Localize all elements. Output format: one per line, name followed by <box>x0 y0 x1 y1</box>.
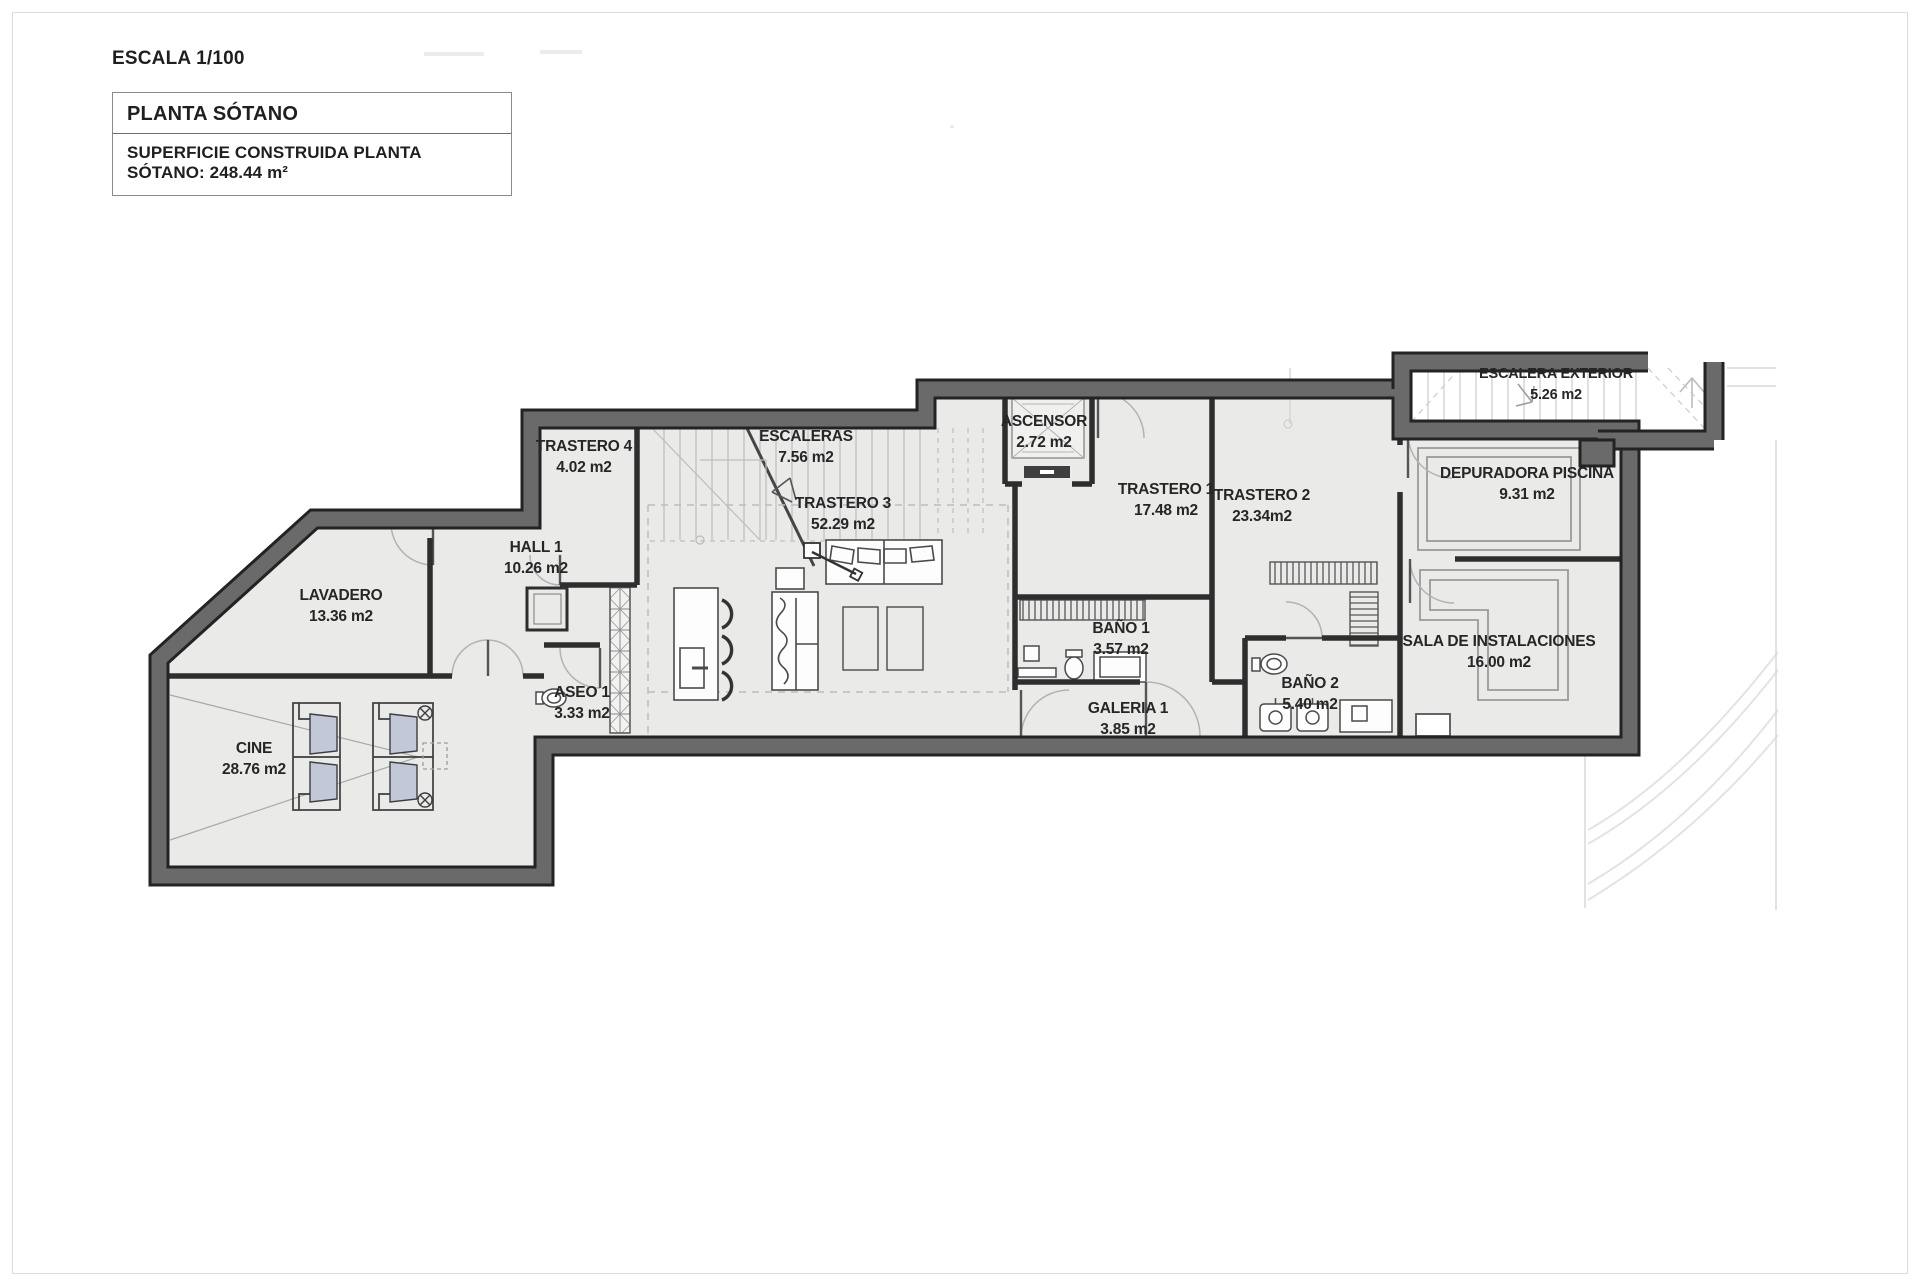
room-label-trastero1: TRASTERO 1 <box>1118 481 1215 498</box>
room-label-depuradora-piscina: DEPURADORA PISCINA <box>1440 465 1614 482</box>
room-label-escalera-exterior: ESCALERA EXTERIOR <box>1479 366 1634 382</box>
room-label-sala-instalaciones: SALA DE INSTALACIONES <box>1402 633 1595 650</box>
room-area-hall1: 10.26 m2 <box>504 560 568 577</box>
built-area-note: SUPERFICIE CONSTRUIDA PLANTA SÓTANO: 248… <box>113 134 511 195</box>
room-area-depuradora-piscina: 9.31 m2 <box>1499 486 1554 503</box>
wardrobe-bano1 <box>1020 600 1145 620</box>
room-area-trastero1: 17.48 m2 <box>1134 502 1198 519</box>
room-label-bano1: BAÑO 1 <box>1092 619 1150 637</box>
room-area-bano1: 3.57 m2 <box>1093 641 1148 658</box>
floor-plan-page: TRASTERO 44.02 m2ESCALERAS7.56 m2ASCENSO… <box>0 0 1920 1280</box>
room-label-aseo1: ASEO 1 <box>554 684 610 701</box>
room-label-cine: CINE <box>236 740 272 757</box>
room-area-cine: 28.76 m2 <box>222 761 286 778</box>
room-area-trastero3: 52.29 m2 <box>811 516 875 533</box>
aseo-closet <box>527 588 567 630</box>
room-label-escaleras: ESCALERAS <box>759 428 853 445</box>
room-area-escaleras: 7.56 m2 <box>778 449 833 466</box>
shaft-hatch-strip <box>610 584 630 733</box>
room-label-galeria1: GALERIA 1 <box>1088 700 1169 717</box>
title-box: PLANTA SÓTANO SUPERFICIE CONSTRUIDA PLAN… <box>112 92 512 196</box>
room-label-lavadero: LAVADERO <box>299 587 382 604</box>
room-label-ascensor: ASCENSOR <box>1001 413 1087 430</box>
floor-title: PLANTA SÓTANO <box>113 93 511 134</box>
room-area-trastero2: 23.34m2 <box>1232 508 1292 525</box>
room-label-hall1: HALL 1 <box>510 539 563 556</box>
side-table <box>776 568 804 589</box>
room-area-ascensor: 2.72 m2 <box>1016 434 1071 451</box>
room-area-aseo1: 3.33 m2 <box>554 705 609 722</box>
room-area-trastero4: 4.02 m2 <box>556 459 611 476</box>
room-area-galeria1: 3.85 m2 <box>1100 721 1155 738</box>
room-label-trastero2: TRASTERO 2 <box>1214 487 1310 504</box>
room-label-trastero3: TRASTERO 3 <box>795 495 892 512</box>
scale-note: ESCALA 1/100 <box>112 48 512 70</box>
room-label-bano2: BAÑO 2 <box>1281 674 1338 692</box>
room-area-lavadero: 13.36 m2 <box>309 608 373 625</box>
room-area-sala-instalaciones: 16.00 m2 <box>1467 654 1531 671</box>
title-block: ESCALA 1/100 PLANTA SÓTANO SUPERFICIE CO… <box>112 48 512 196</box>
chaise-sofa <box>772 592 818 690</box>
room-label-trastero4: TRASTERO 4 <box>536 438 633 455</box>
straight-sofa <box>826 540 942 584</box>
kitchen-island <box>674 588 718 700</box>
room-area-bano2: 5.40 m2 <box>1282 696 1337 713</box>
wardrobe-trastero2 <box>1270 562 1377 584</box>
room-area-escalera-exterior: 5.26 m2 <box>1530 387 1582 403</box>
